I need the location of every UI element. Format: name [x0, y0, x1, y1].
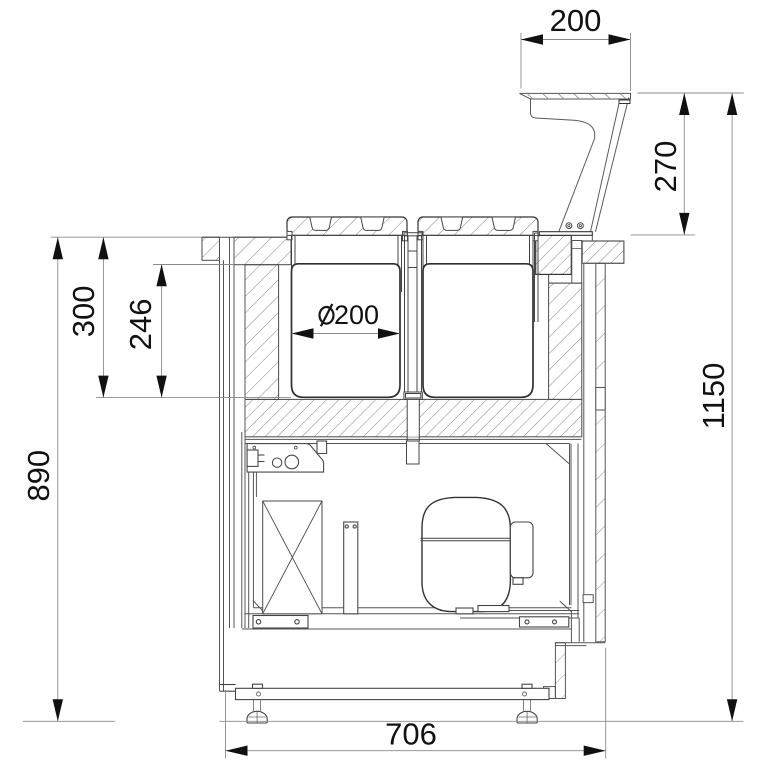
svg-text:1150: 1150	[696, 363, 731, 430]
svg-text:246: 246	[123, 299, 158, 351]
svg-text:200: 200	[334, 300, 379, 330]
svg-text:270: 270	[648, 141, 683, 193]
svg-text:200: 200	[550, 3, 602, 38]
svg-text:890: 890	[21, 450, 56, 502]
svg-text:706: 706	[385, 717, 437, 752]
svg-text:300: 300	[66, 286, 101, 338]
